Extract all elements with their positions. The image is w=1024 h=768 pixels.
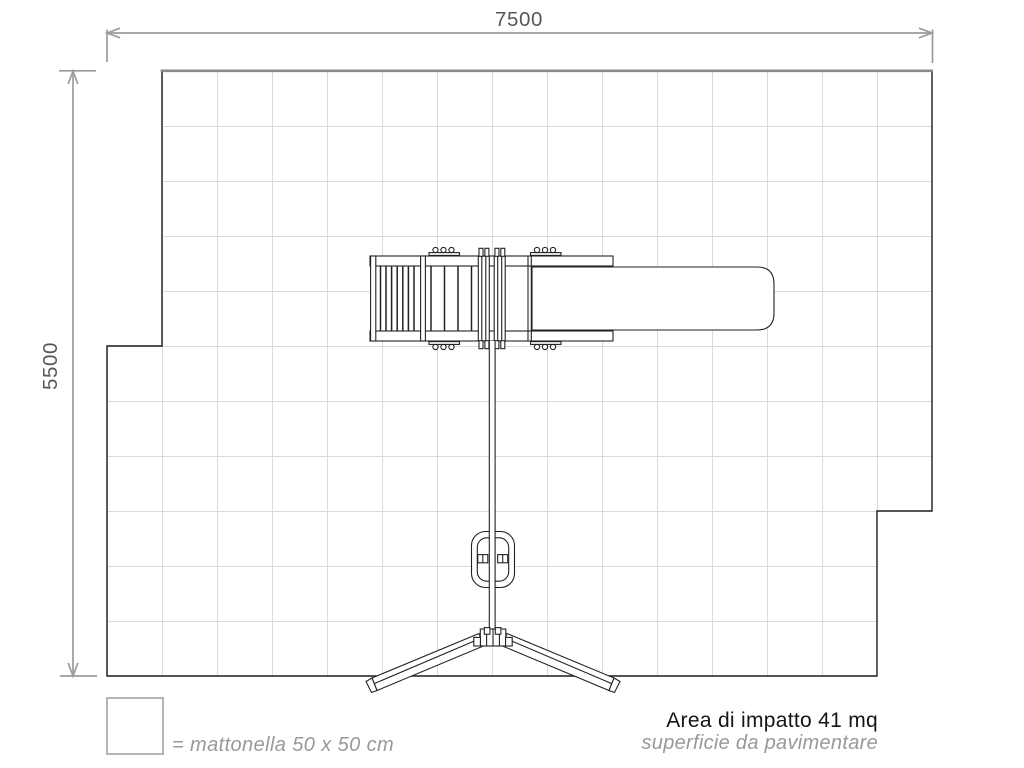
legend-tile-label: = mattonella 50 x 50 cm: [172, 734, 394, 756]
plan-drawing: 7500 5500: [0, 0, 1024, 768]
height-dimension: [59, 71, 97, 676]
platform-rail-top: [370, 256, 613, 266]
plan-sheet: 7500 5500: [0, 0, 1024, 768]
impact-area-label: Area di impatto 41 mq: [666, 709, 878, 732]
height-dimension-label: 5500: [39, 342, 62, 390]
frame-left-upright: [371, 256, 376, 341]
width-dimension-label: 7500: [495, 8, 543, 31]
width-dimension: [107, 28, 933, 63]
platform-rail-bottom: [370, 331, 613, 341]
ladder-rungs: [381, 266, 415, 331]
swing-beam: [489, 341, 495, 630]
impact-area-sublabel: superficie da pavimentare: [641, 732, 878, 754]
frame-divider: [421, 256, 426, 341]
legend-tile-swatch: [107, 698, 163, 754]
slide: [532, 267, 774, 330]
tile-grid: [107, 71, 932, 676]
